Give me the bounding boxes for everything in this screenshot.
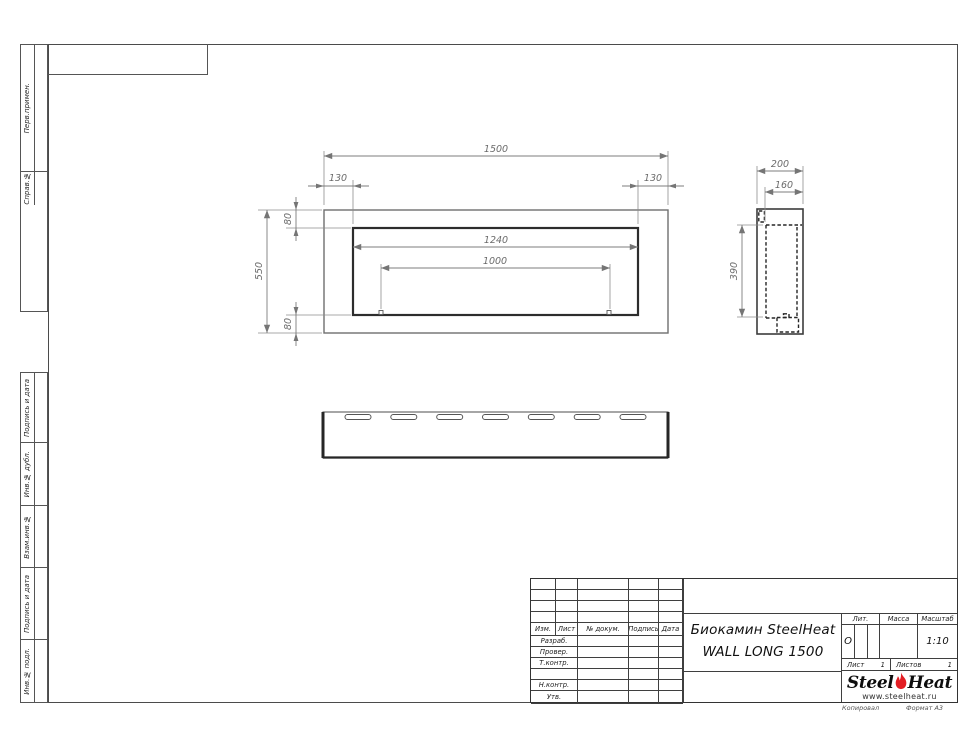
- burner-mark-left: [379, 311, 383, 315]
- dim-80-bottom: 80: [283, 318, 294, 330]
- bottom-view: [323, 412, 668, 458]
- vent-slot: [574, 415, 600, 420]
- row-tkontr: Т.контр.: [531, 658, 578, 669]
- lit-value: О: [842, 625, 855, 659]
- hidden-lines: [759, 211, 802, 332]
- sheets-label: Листов: [896, 661, 921, 669]
- mass-value: [880, 625, 918, 659]
- copied-label: Копировал: [842, 704, 879, 712]
- dim-550: 550: [254, 262, 265, 280]
- vent-slot: [437, 415, 463, 420]
- lit-mass-scale-header: Лит. Масса Масштаб: [841, 613, 957, 625]
- dim-130-left: 130: [329, 173, 347, 184]
- front-view: 1500 130 130 1240 1000 550 80 80: [254, 144, 684, 346]
- row-prover: Провер.: [531, 647, 578, 658]
- vent-slots: [345, 415, 646, 420]
- empty-cell: [683, 671, 842, 702]
- row-razrab: Разраб.: [531, 636, 578, 647]
- dimension-lines: [267, 156, 684, 346]
- burner-mark-right: [607, 311, 611, 315]
- vent-slot: [483, 415, 509, 420]
- logo-text-heat: Heat: [908, 675, 953, 692]
- dim-80-top: 80: [283, 213, 294, 225]
- dim-390: 390: [729, 262, 740, 280]
- sheet-value: 1: [881, 661, 885, 669]
- logo-url: www.steelheat.ru: [862, 692, 937, 701]
- col-dokum: № докум.: [578, 623, 629, 636]
- sheet-label: Лист: [847, 661, 864, 669]
- scale-value: 1:10: [918, 625, 957, 659]
- vent-slot: [528, 415, 554, 420]
- col-izm: Изм.: [531, 623, 556, 636]
- flame-icon: [893, 672, 909, 692]
- lit-mass-scale-values: О 1:10: [841, 625, 957, 659]
- row-nkontr: Н.контр.: [531, 680, 578, 691]
- dim-130-right: 130: [644, 173, 662, 184]
- dim-1240: 1240: [484, 235, 508, 246]
- format-label: Формат А3: [906, 704, 943, 712]
- dim-200: 200: [771, 159, 789, 170]
- company-logo: Steel Heat www.steelheat.ru: [841, 671, 957, 702]
- document-title: Биокамин SteelHeat WALL LONG 1500: [683, 613, 842, 672]
- dim-160: 160: [775, 180, 793, 191]
- dim-1000: 1000: [483, 256, 507, 267]
- drawing-sheet: Перв.примен. Справ.№ Подпись и дата Инв.…: [0, 0, 970, 749]
- vent-slot: [345, 415, 371, 420]
- row-empty: [531, 669, 578, 680]
- col-data: Дата: [659, 623, 683, 636]
- designation-cell: [683, 579, 957, 614]
- scale-label: Масштаб: [918, 613, 957, 625]
- extension-lines: [258, 151, 668, 333]
- dimension-lines: [742, 171, 803, 317]
- document-title-line1: Биокамин SteelHeat: [691, 620, 836, 642]
- side-view: 200 160 390: [729, 159, 803, 334]
- lit-label: Лит.: [842, 613, 880, 625]
- mass-label: Масса: [880, 613, 918, 625]
- side-outer-body: [757, 209, 803, 334]
- document-title-line2: WALL LONG 1500: [703, 642, 824, 664]
- title-block: Изм. Лист № докум. Подпись Дата Разраб. …: [530, 578, 958, 703]
- sheet-count-row: Лист 1 Листов 1: [841, 659, 957, 671]
- col-list: Лист: [556, 623, 578, 636]
- row-utv: Утв.: [531, 691, 578, 704]
- vent-slot: [391, 415, 417, 420]
- extension-lines: [737, 166, 803, 317]
- col-podpis: Подпись: [629, 623, 659, 636]
- logo-text-steel: Steel: [847, 675, 894, 692]
- vent-slot: [620, 415, 646, 420]
- dim-1500: 1500: [484, 144, 508, 155]
- sheets-value: 1: [948, 661, 952, 669]
- revision-table: Изм. Лист № докум. Подпись Дата Разраб. …: [531, 579, 683, 700]
